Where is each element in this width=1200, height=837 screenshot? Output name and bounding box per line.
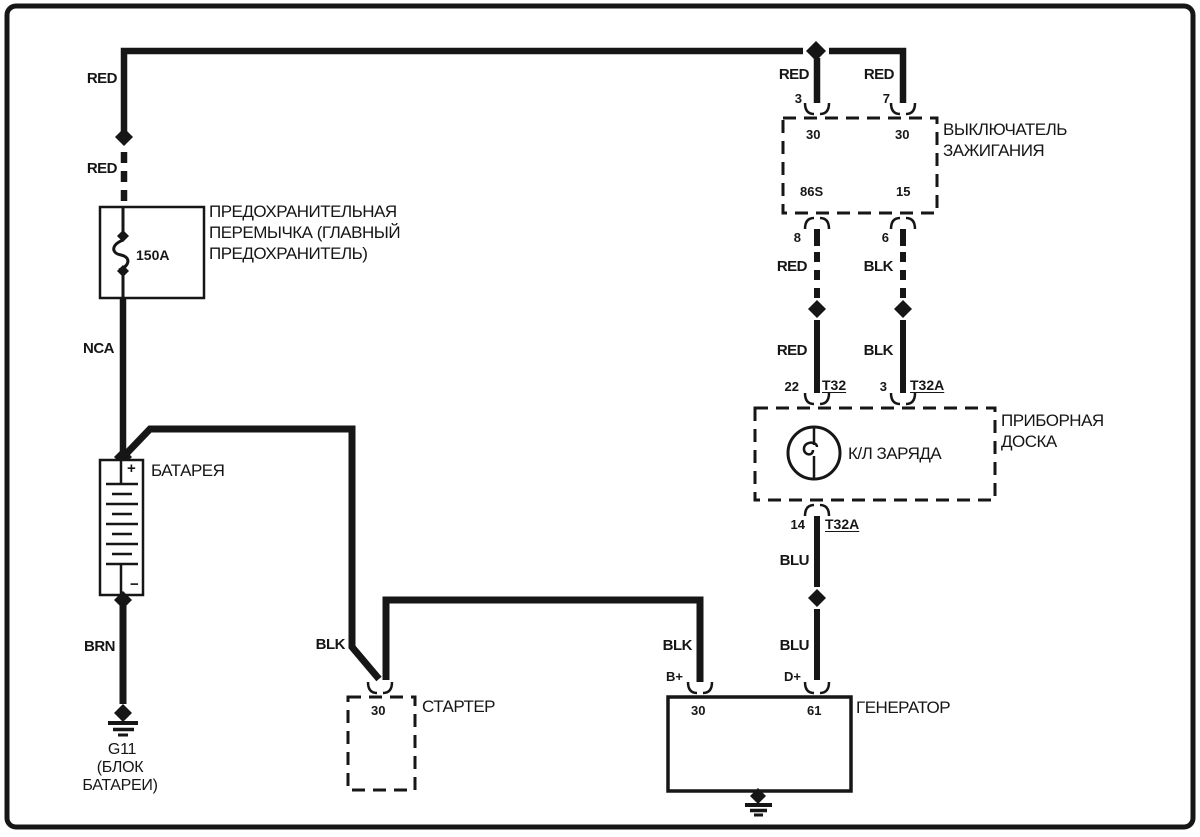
generator-terminal-bplus [688,682,712,693]
wire-color-label: BRN [84,638,115,655]
panel-connector-t32: T32 [822,377,846,393]
ignition-pin-7: 7 [883,91,890,106]
panel-terminal-14 [805,505,829,516]
ignition-terminal-8 [805,218,829,229]
ground-symbol-battery [108,704,138,735]
wire-color-label: RED [777,342,807,359]
battery-plus-sign: + [127,460,136,477]
ignition-pin-3: 3 [795,91,802,106]
wire-color-label: BLU [780,552,809,569]
generator-pin-30: 30 [691,703,705,718]
battery-minus-sign: − [130,576,139,593]
generator-name: ГЕНЕРАТОР [856,697,950,718]
panel-connector-t32a-out: T32A [825,516,859,532]
fuse-name-line2: ПЕРЕМЫЧКА (ГЛАВНЫЙ [209,222,400,243]
ignition-terminal-3 [805,103,829,114]
wire-color-label: BLU [780,637,809,654]
splice-dot-blk [894,300,912,318]
ignition-name-line1: ВЫКЛЮЧАТЕЛЬ [943,119,1067,140]
ignition-pin-6: 6 [882,230,889,245]
ignition-terminal-15-label: 15 [896,184,910,199]
wire-color-label: RED [779,66,809,83]
splice-dot-blu [808,589,826,607]
wire-color-label: RED [864,66,894,83]
ignition-terminal-86s-label: 86S [800,184,823,199]
charge-lamp-symbol [788,427,840,479]
ground-name-line1: (БЛОК [97,759,144,777]
ground-name-line2: БАТАРЕИ) [82,777,157,795]
generator-terminal-dplus-label: D+ [784,669,801,684]
ignition-terminal-6 [891,218,915,229]
wire-color-label: NCA [83,340,114,357]
wire-main-feed-top [124,51,803,133]
ignition-terminal-7 [891,103,915,114]
wire-color-label: BLK [316,636,345,653]
charge-lamp-label: К/Л ЗАРЯДА [848,443,941,464]
wire-color-label: BLK [663,637,692,654]
panel-connector-t32a: T32A [910,377,944,393]
generator-pin-61: 61 [807,703,821,718]
wire-color-label: BLK [864,258,893,275]
fuse-name-line1: ПРЕДОХРАНИТЕЛЬНАЯ [209,201,397,222]
battery-name: БАТАРЕЯ [151,460,224,481]
panel-terminal-3 [891,393,915,404]
panel-pin-22: 22 [785,379,799,394]
panel-terminal-22 [805,393,829,404]
starter-name: СТАРТЕР [422,696,495,717]
wiring-diagram-page: RED RED 150A ПРЕДОХРАНИТЕЛЬНАЯ ПЕРЕМЫЧКА… [0,0,1200,837]
panel-pin-14: 14 [791,517,805,532]
wire-color-label: RED [87,70,117,87]
cable-starter-generator [386,600,700,682]
starter-terminal [368,682,392,693]
fuse-rating: 150A [136,247,169,263]
panel-name-line1: ПРИБОРНАЯ [1001,410,1104,431]
wire-color-label: RED [87,160,117,177]
fuse-name-line3: ПРЕДОХРАНИТЕЛЬ) [209,243,367,264]
splice-dot-red [808,300,826,318]
ground-code: G11 [108,741,136,759]
wire-color-label: RED [777,258,807,275]
ignition-terminal-30-left-label: 30 [806,127,820,142]
generator-terminal-bplus-label: B+ [666,669,683,684]
panel-pin-3: 3 [880,379,887,394]
ignition-terminal-30-right-label: 30 [895,127,909,142]
starter-pin: 30 [371,703,385,718]
panel-name-line2: ДОСКА [1001,431,1057,452]
generator-terminal-dplus [805,682,829,693]
ignition-pin-8: 8 [794,230,801,245]
wire-color-label: BLK [864,342,893,359]
splice-dot-feed [115,128,133,146]
ignition-name-line2: ЗАЖИГАНИЯ [943,140,1044,161]
